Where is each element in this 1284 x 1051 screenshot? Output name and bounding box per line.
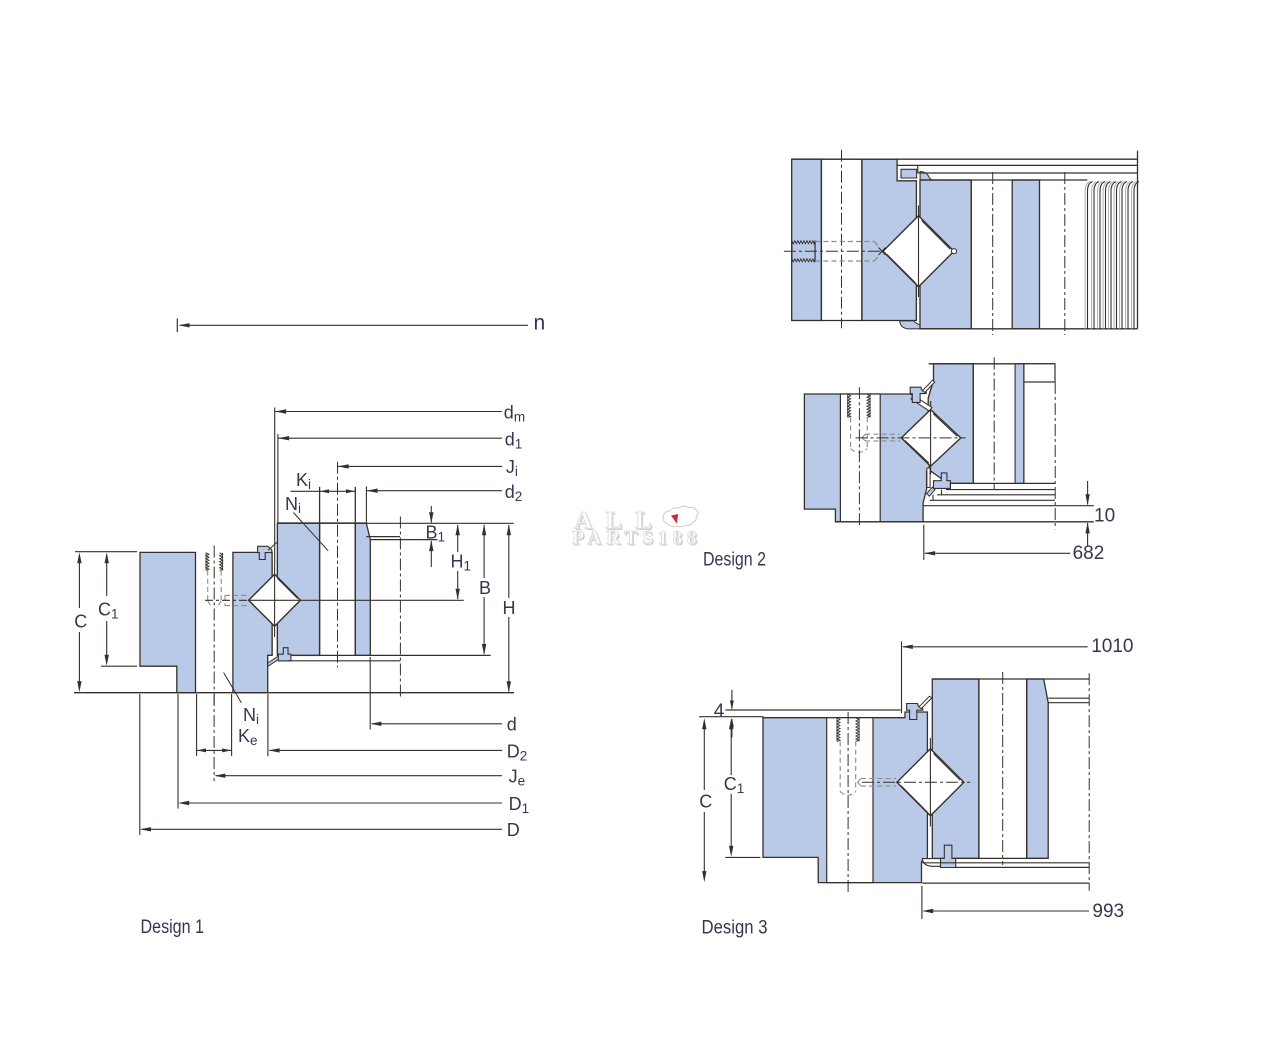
svg-text:4: 4: [714, 701, 725, 722]
svg-text:C: C: [699, 791, 712, 811]
svg-text:n: n: [534, 312, 546, 335]
svg-text:1010: 1010: [1091, 636, 1133, 657]
svg-text:C: C: [74, 611, 87, 631]
svg-text:B: B: [479, 578, 491, 598]
svg-text:H: H: [503, 598, 516, 618]
svg-text:Design 3: Design 3: [702, 917, 768, 939]
svg-text:682: 682: [1073, 543, 1105, 564]
svg-text:d: d: [507, 715, 517, 735]
svg-text:PARTS188: PARTS188: [572, 528, 701, 549]
svg-text:D: D: [507, 820, 520, 840]
svg-text:Design 2: Design 2: [703, 548, 766, 570]
svg-text:Design 1: Design 1: [141, 916, 205, 938]
svg-text:993: 993: [1092, 901, 1124, 922]
svg-text:10: 10: [1094, 506, 1115, 527]
